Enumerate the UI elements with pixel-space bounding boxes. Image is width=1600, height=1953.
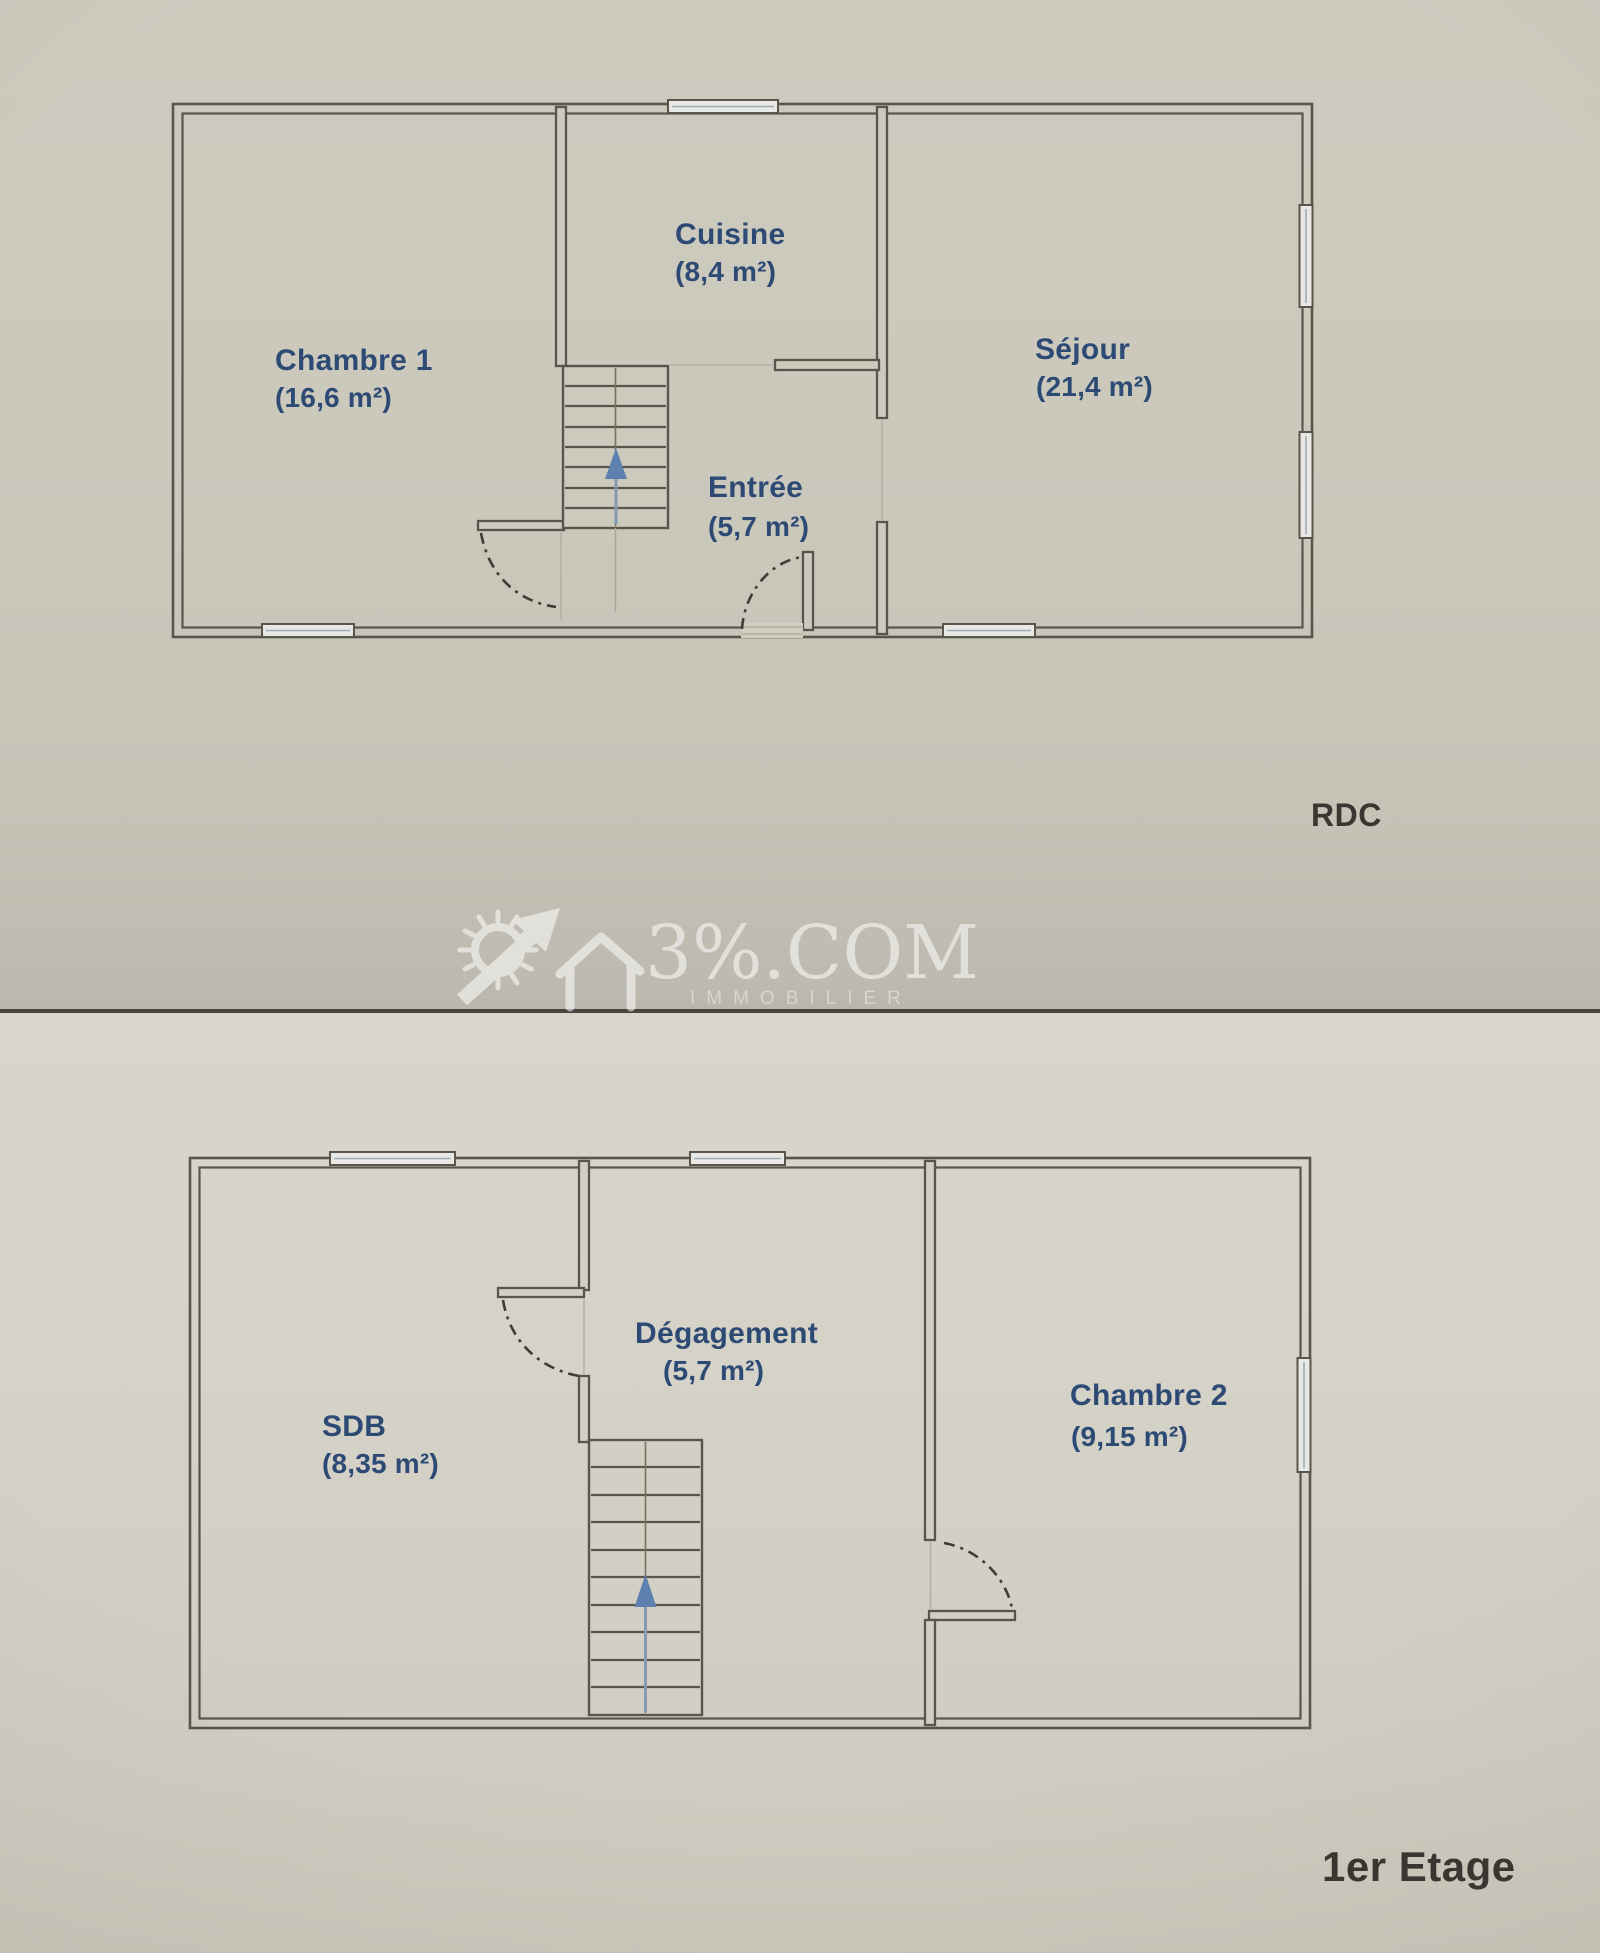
floor-plan-photo: 3%.COM IMMOBILIER [0, 0, 1600, 1953]
room-label-chambre2: Chambre 2 [1070, 1379, 1228, 1413]
room-area-sdb: (8,35 m²) [322, 1448, 439, 1480]
room-label-sejour: Séjour [1035, 333, 1130, 367]
window [668, 100, 778, 113]
floor-plan-canvas: 3%.COM IMMOBILIER [0, 0, 1600, 1953]
front-door-threshold [741, 623, 803, 638]
room-area-chambre1: (16,6 m²) [275, 382, 392, 414]
watermark-brand: 3%.COM [645, 910, 979, 996]
wall-sdb-degagement-lower [579, 1376, 589, 1442]
window [1298, 1358, 1311, 1472]
room-label-cuisine: Cuisine [675, 218, 785, 252]
agency-logo-icon [460, 908, 640, 1007]
window [1300, 205, 1313, 307]
rdc-interior-walls [478, 107, 887, 634]
room-area-degagement: (5,7 m²) [663, 1355, 764, 1387]
staircase-rdc [563, 366, 668, 612]
wall-degagement-chambre2-lower [925, 1620, 935, 1725]
room-area-entree: (5,7 m²) [708, 511, 809, 543]
room-label-sdb: SDB [322, 1410, 386, 1444]
etage-interior-walls [498, 1161, 1015, 1725]
door-swing-arc [481, 533, 556, 607]
agency-watermark: 3%.COM IMMOBILIER [460, 908, 979, 1009]
window [262, 624, 354, 637]
door-swing-arc [503, 1300, 579, 1376]
wall-chambre1-cuisine [556, 107, 566, 366]
room-area-sejour: (21,4 m²) [1036, 371, 1153, 403]
wall-entree-sejour-lower [877, 522, 887, 634]
room-label-degagement: Dégagement [635, 1317, 818, 1351]
watermark-subtitle: IMMOBILIER [690, 988, 912, 1009]
floor-label-rdc: RDC [1311, 797, 1382, 834]
floor-label-etage: 1er Etage [1322, 1843, 1516, 1891]
staircase-etage [589, 1440, 702, 1715]
room-area-cuisine: (8,4 m²) [675, 256, 776, 288]
window [690, 1152, 785, 1165]
front-door-leaf [803, 552, 813, 630]
door-swing-arc [742, 557, 802, 629]
rdc-door-arcs [481, 533, 802, 629]
window [330, 1152, 455, 1165]
chambre2-door-leaf [929, 1611, 1015, 1620]
door-swing-arc [944, 1543, 1012, 1608]
wall-cuisine-bottom [775, 360, 879, 370]
window [1300, 432, 1313, 538]
wall-cuisine-sejour [877, 107, 887, 418]
wall-sdb-degagement-upper [579, 1161, 589, 1290]
room-label-chambre1: Chambre 1 [275, 344, 433, 378]
wall-degagement-chambre2-upper [925, 1161, 935, 1540]
wall-stub-chambre1-door [478, 521, 564, 530]
window [943, 624, 1035, 637]
sdb-door-leaf [498, 1288, 584, 1297]
room-label-entree: Entrée [708, 471, 803, 505]
room-area-chambre2: (9,15 m²) [1071, 1421, 1188, 1453]
